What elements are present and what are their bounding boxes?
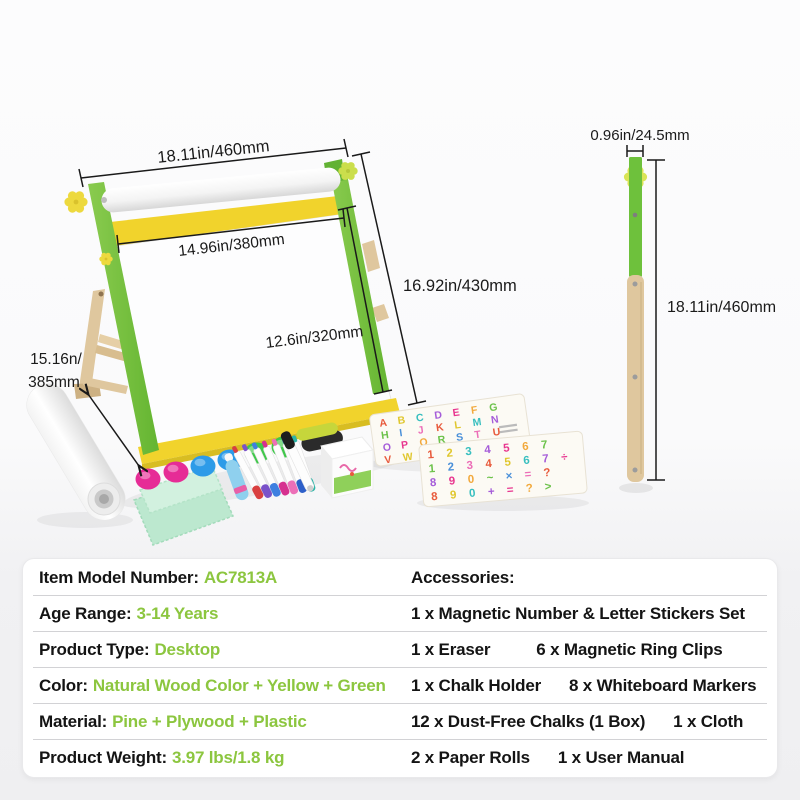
leg-width-label: 0.96in/24.5mm <box>590 127 689 144</box>
spec-label: Item Model Number: <box>39 568 199 587</box>
magnetic-ring-clip <box>191 456 216 477</box>
spec-label: Color: <box>39 676 88 695</box>
screw <box>633 375 638 380</box>
accessories-cell: 1 x Magnetic Number & Letter Stickers Se… <box>405 604 767 624</box>
spec-value: Pine + Plywood + Plastic <box>112 712 307 731</box>
stand-depth-label-line2: 385mm <box>28 374 80 391</box>
magnetic-ring-clip <box>136 469 161 490</box>
spec-label: Age Range: <box>39 604 131 623</box>
accessory-item: 1 x Eraser <box>411 640 490 659</box>
leg-height-measure <box>647 160 665 480</box>
spec-value: 3.97 lbs/1.8 kg <box>172 748 284 767</box>
spec-cell: Age Range:3-14 Years <box>33 604 405 624</box>
accessories-cell: 1 x Eraser6 x Magnetic Ring Clips <box>405 640 767 660</box>
accessory-item: 12 x Dust-Free Chalks (1 Box) <box>411 712 645 731</box>
accessory-item: 1 x Magnetic Number & Letter Stickers Se… <box>411 604 745 623</box>
product-infographic-page: ABCDEFGHIJKLMNOPQRSTUVWXYZ 1234567123456… <box>0 0 800 800</box>
product-photo: ABCDEFGHIJKLMNOPQRSTUVWXYZ 1234567123456… <box>0 0 800 552</box>
tube-opening-hole <box>99 494 109 504</box>
screw <box>633 468 638 473</box>
accessories-cell: Accessories: <box>405 568 767 588</box>
spec-label: Product Weight: <box>39 748 167 767</box>
leg-shadow <box>619 483 653 493</box>
leg-height-label: 18.11in/460mm <box>667 299 776 316</box>
accessories-cell: 12 x Dust-Free Chalks (1 Box)1 x Cloth <box>405 712 767 732</box>
specs-table: Item Model Number:AC7813A Accessories: A… <box>22 558 778 778</box>
standalone-leg <box>627 157 644 482</box>
spec-value: 3-14 Years <box>136 604 218 623</box>
spec-value: Desktop <box>154 640 220 659</box>
accessory-item: 1 x Cloth <box>673 712 743 731</box>
hinge-bolt <box>99 292 104 297</box>
accessory-item: 1 x Chalk Holder <box>411 676 541 695</box>
spec-label: Product Type: <box>39 640 149 659</box>
spec-cell: Item Model Number:AC7813A <box>33 568 405 588</box>
accessories-cell: 2 x Paper Rolls1 x User Manual <box>405 748 767 768</box>
accessory-item: 2 x Paper Rolls <box>411 748 530 767</box>
screw <box>633 213 638 218</box>
accessories-header: Accessories: <box>411 568 514 587</box>
spec-row: Item Model Number:AC7813A Accessories: <box>33 560 767 596</box>
spec-row: Material:Pine + Plywood + Plastic 12 x D… <box>33 704 767 740</box>
leg-width-measure <box>627 145 643 157</box>
spec-value: Natural Wood Color + Yellow + Green <box>93 676 386 695</box>
flower-knob <box>64 191 87 212</box>
spec-row: Product Weight:3.97 lbs/1.8 kg 2 x Paper… <box>33 740 767 776</box>
spec-cell: Material:Pine + Plywood + Plastic <box>33 712 405 732</box>
accessories-cell: 1 x Chalk Holder8 x Whiteboard Markers <box>405 676 767 696</box>
spec-cell: Product Type:Desktop <box>33 640 405 660</box>
spec-row: Color:Natural Wood Color + Yellow + Gree… <box>33 668 767 704</box>
spec-value: AC7813A <box>204 568 277 587</box>
magnetic-ring-clip <box>164 462 189 483</box>
accessory-item: 1 x User Manual <box>558 748 684 767</box>
spec-label: Material: <box>39 712 107 731</box>
accessory-item: 6 x Magnetic Ring Clips <box>536 640 722 659</box>
spec-cell: Product Weight:3.97 lbs/1.8 kg <box>33 748 405 768</box>
stand-depth-label-line1: 15.16n/ <box>30 351 82 368</box>
screw <box>633 282 638 287</box>
roll-pin <box>101 197 107 203</box>
easel-height-label: 16.92in/430mm <box>403 277 517 295</box>
chalk-box <box>321 437 373 498</box>
spec-cell: Color:Natural Wood Color + Yellow + Gree… <box>33 676 405 696</box>
spec-row: Product Type:Desktop 1 x Eraser6 x Magne… <box>33 632 767 668</box>
chalk-box-art-dot <box>350 472 354 476</box>
spec-row: Age Range:3-14 Years 1 x Magnetic Number… <box>33 596 767 632</box>
accessory-item: 8 x Whiteboard Markers <box>569 676 756 695</box>
